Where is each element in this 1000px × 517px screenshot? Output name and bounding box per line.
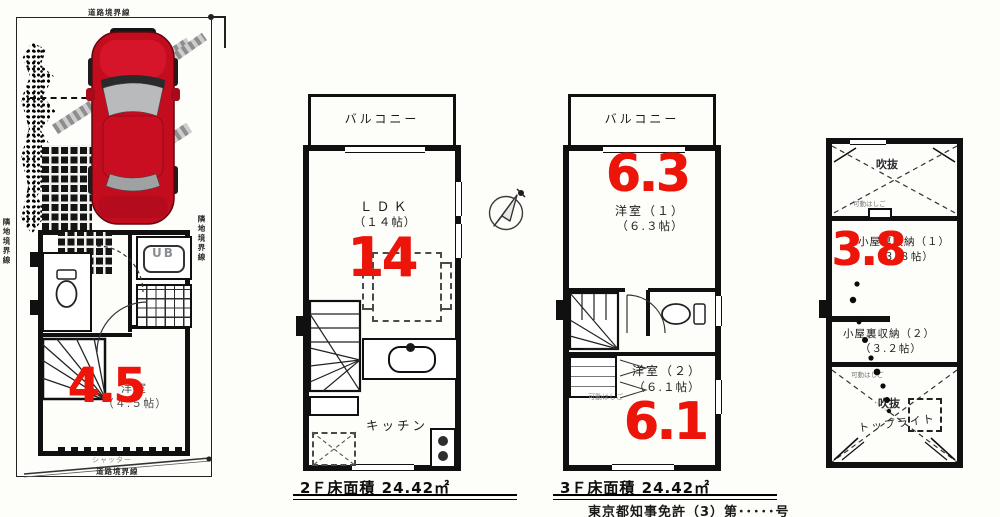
balcony-3f-label: バルコニー [605,110,680,127]
fridge-x-mark [312,432,356,466]
room2-name: 洋室（２） [612,364,722,378]
room1-area-number: 6.3 [606,150,689,199]
stove [430,428,456,468]
room1-size: （６.３帖） [595,220,705,234]
shutter-label: シャッター [92,456,132,464]
attic-divider-wall [832,216,957,221]
pipe-space [296,316,304,336]
window [715,296,722,326]
partition-wall [648,288,718,292]
balcony-3f: バルコニー [568,94,716,148]
balcony-2f-label: バルコニー [345,110,420,127]
ub-label: UB [152,246,175,260]
floor3-divider-rule [553,494,777,500]
boundary-label-left: 隣地境界線 [2,218,11,266]
chair-dashed [440,262,452,310]
window [345,146,425,153]
door-arc [95,300,147,352]
boundary-corner-dot [208,14,214,20]
floorplan-sheet: 道路境界線 隣地境界線 隣地境界線 [0,0,1000,517]
boundary-label-bottom: 道路境界線 [96,467,139,476]
scan-speckles [845,280,905,415]
room2-area-number: 6.1 [624,398,707,447]
room1-name: 洋室（１） [595,204,705,218]
stairs-3f-icon [569,292,619,350]
toilet-icon-3f [656,296,710,332]
burner [438,436,448,446]
void-top-label: 吹抜 [874,158,900,171]
boundary-label-top: 道路境界線 [88,8,131,17]
balcony-2f: バルコニー [308,94,456,148]
toilet-room-1f [42,252,92,332]
burner [438,451,448,461]
unit-bath: UB [136,236,192,280]
door-arc [95,246,143,294]
faucet [406,343,415,352]
window [455,182,462,216]
closet-3f [569,356,617,398]
ldk-name: ＬＤＫ [330,200,440,216]
void-top-x-lines [832,146,957,214]
entrance-tile-pattern [42,145,92,230]
boundary-label-right: 隣地境界線 [197,215,206,263]
closet-2f [309,396,359,416]
ladder-label-attic-top: 可動はしご [853,201,886,209]
window [612,464,674,471]
license-text: 東京都知事免許（3）第･････号 [588,505,790,517]
shutter-strip [58,447,184,454]
wall-nub [819,300,827,318]
compass-icon [483,187,531,235]
room-1f-area-number: 4.5 [68,364,144,410]
ladder-hatch [868,208,892,219]
boundary-extension-line-v [224,16,226,48]
kitchen-label: キッチン [366,418,428,433]
pipe-space [556,300,564,320]
toilet-icon [52,268,82,314]
window [455,224,462,258]
window [850,139,886,145]
ldk-area-number: 14 [347,232,415,283]
floor2-divider-rule [293,494,517,500]
meter-box [30,252,38,267]
car-top-view-icon [86,28,180,228]
window [352,464,414,471]
storage1-area-number: 3.8 [832,228,904,272]
meter-box [30,300,38,315]
stairs-2f-icon [309,300,361,392]
